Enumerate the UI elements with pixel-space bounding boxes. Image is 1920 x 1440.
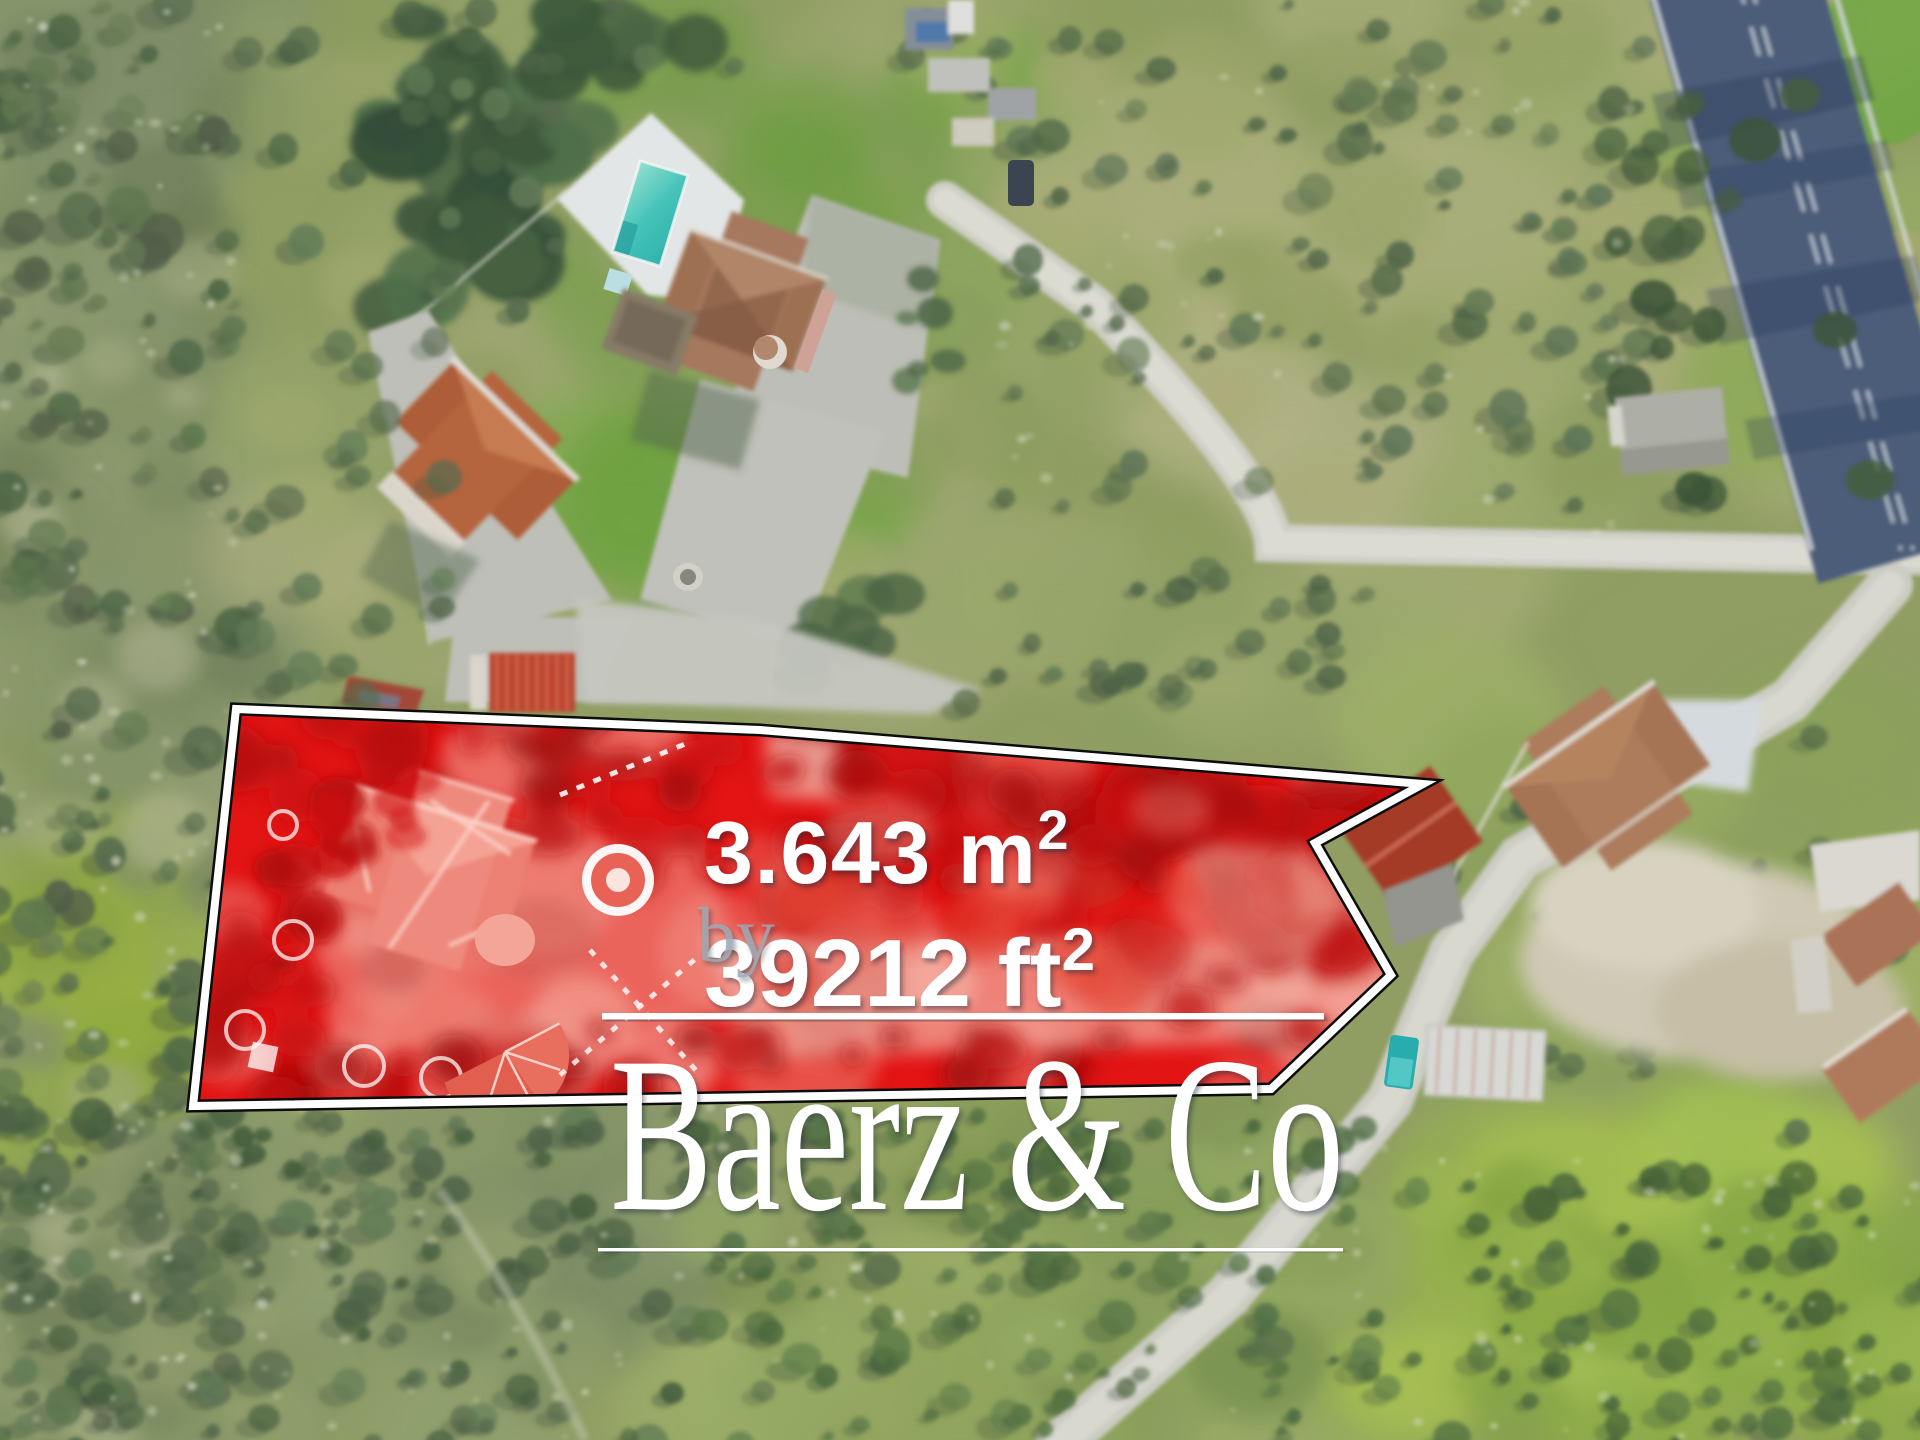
svg-text:Baerz & Co: Baerz & Co: [610, 1012, 1344, 1258]
svg-text:3.643 m2: 3.643 m2: [704, 798, 1070, 902]
svg-text:by: by: [697, 891, 775, 978]
